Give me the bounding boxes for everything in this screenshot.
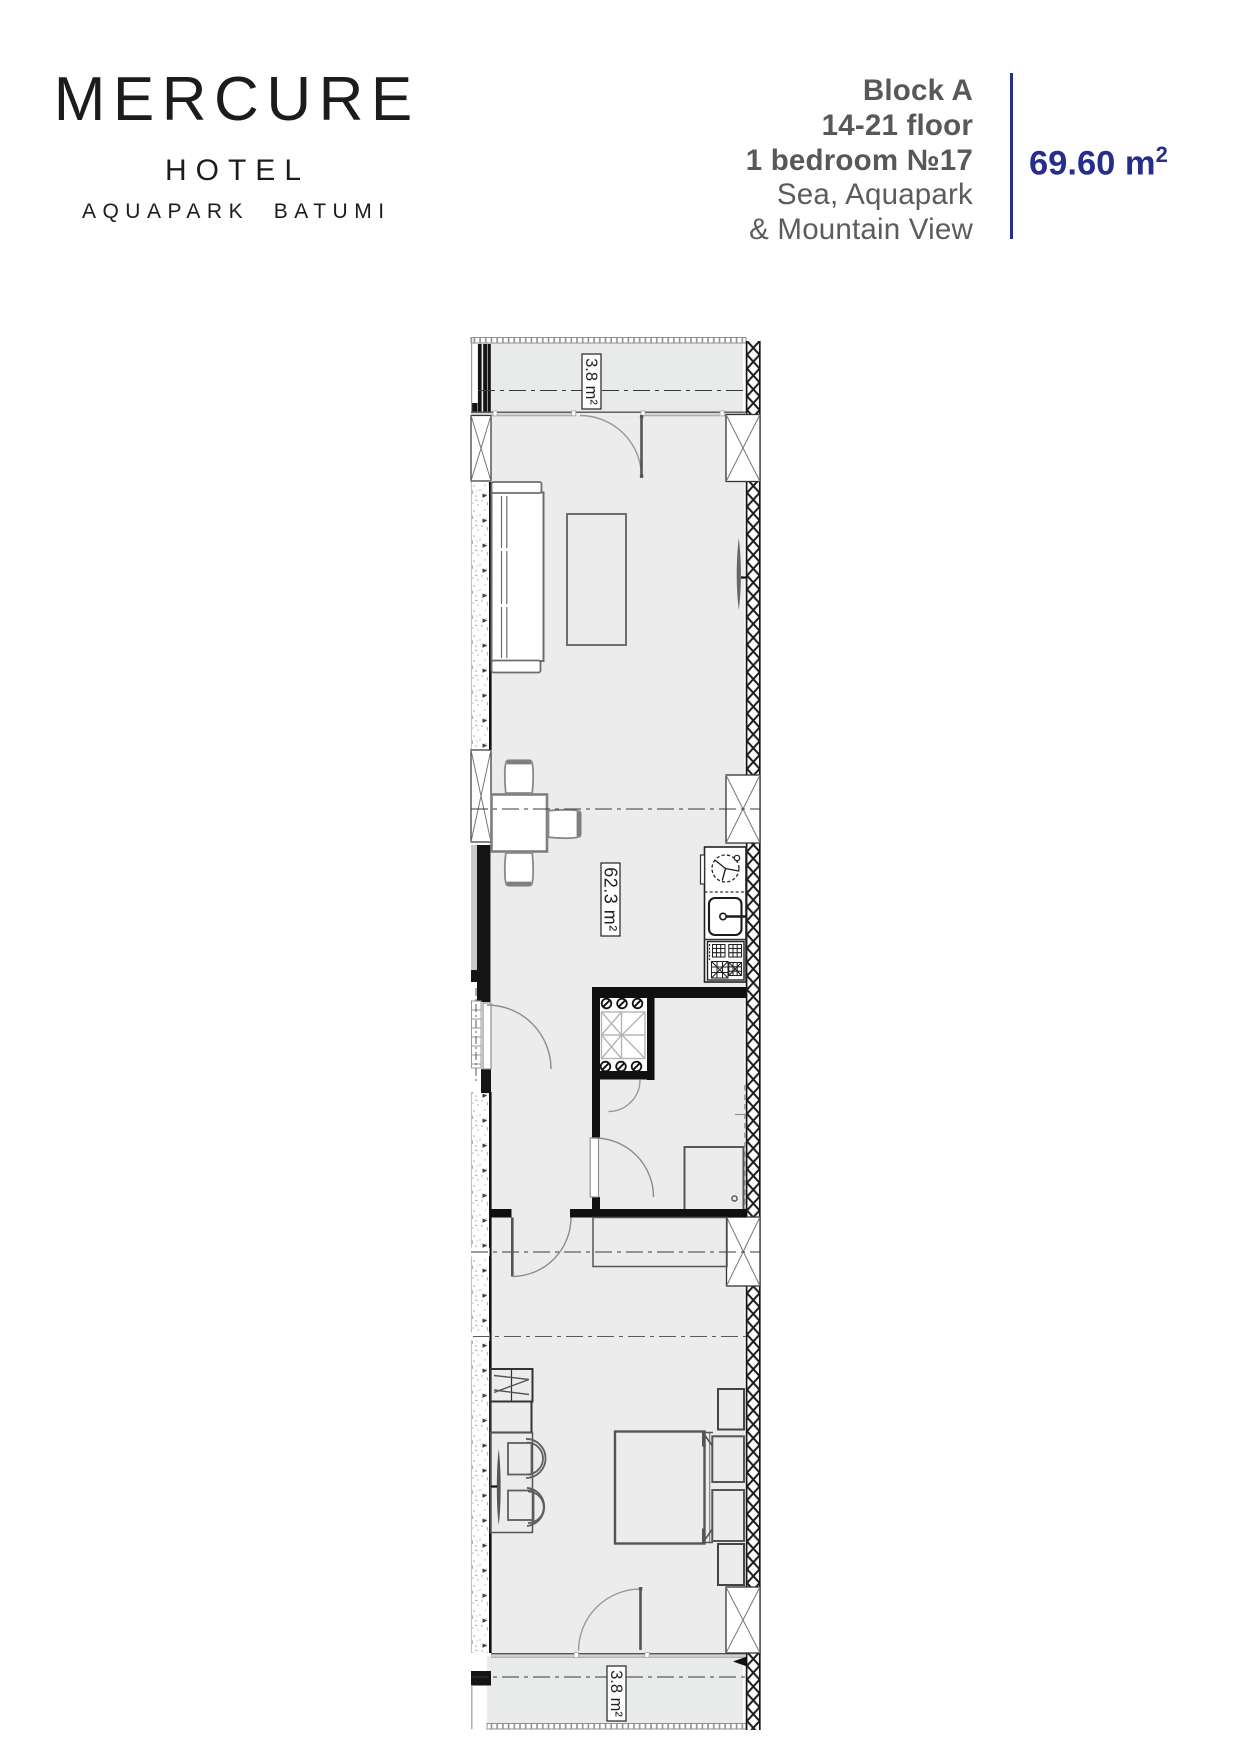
svg-text:62.3 m²: 62.3 m² (601, 867, 621, 932)
svg-text:3.8 m²: 3.8 m² (582, 358, 600, 405)
svg-text:3.8 m²: 3.8 m² (607, 1670, 625, 1717)
